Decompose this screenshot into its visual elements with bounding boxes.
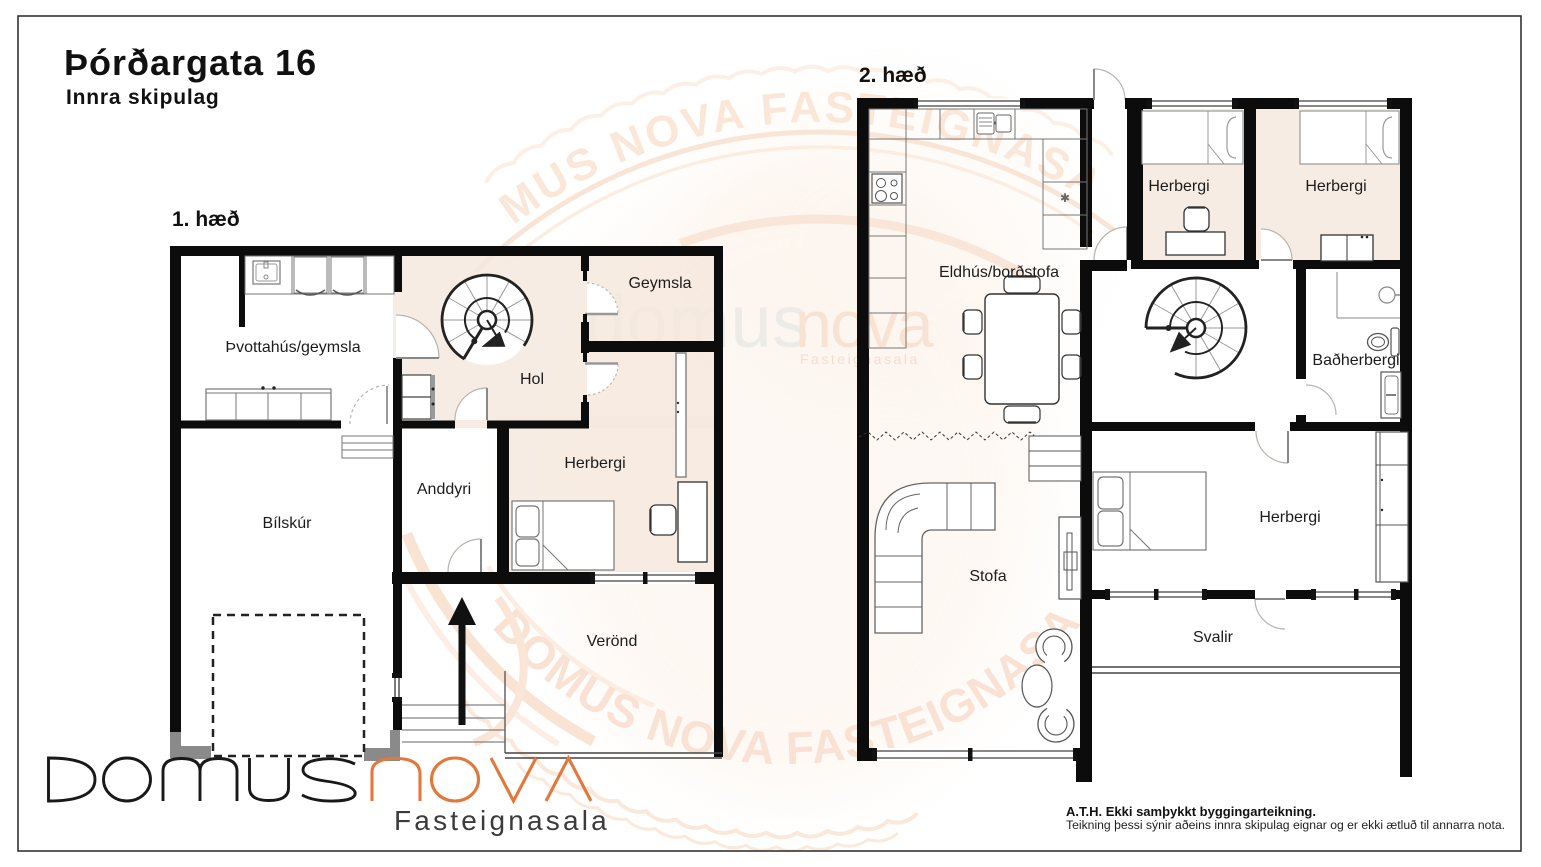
svg-text:✱: ✱ bbox=[1060, 191, 1070, 205]
svg-text:Þvottahús/geymsla: Þvottahús/geymsla bbox=[225, 339, 360, 356]
svg-text:Eldhús/borðstofa: Eldhús/borðstofa bbox=[939, 264, 1059, 281]
svg-text:Herbergi: Herbergi bbox=[564, 455, 625, 472]
svg-text:Teikning þessi sýnir aðeins in: Teikning þessi sýnir aðeins innra skipul… bbox=[1066, 818, 1505, 832]
svg-text:Innra skipulag: Innra skipulag bbox=[66, 86, 220, 109]
svg-text:Herbergi: Herbergi bbox=[1259, 509, 1320, 526]
svg-text:Verönd: Verönd bbox=[587, 633, 638, 650]
svg-text:Geymsla: Geymsla bbox=[628, 275, 691, 292]
svg-text:Bílskúr: Bílskúr bbox=[263, 515, 313, 532]
svg-text:Fasteignasala: Fasteignasala bbox=[394, 805, 610, 836]
svg-text:A.T.H. Ekki samþykkt byggingar: A.T.H. Ekki samþykkt byggingarteikning. bbox=[1066, 804, 1316, 819]
svg-text:Stofa: Stofa bbox=[969, 568, 1006, 585]
svg-text:2. hæð: 2. hæð bbox=[859, 64, 927, 87]
svg-text:Hol: Hol bbox=[520, 371, 544, 388]
svg-text:Herbergi: Herbergi bbox=[1305, 178, 1366, 195]
svg-text:1. hæð: 1. hæð bbox=[172, 208, 240, 231]
svg-text:Anddyri: Anddyri bbox=[417, 481, 471, 498]
svg-text:Herbergi: Herbergi bbox=[1148, 178, 1209, 195]
svg-text:Svalir: Svalir bbox=[1193, 629, 1234, 646]
svg-text:Baðherbergi: Baðherbergi bbox=[1312, 352, 1399, 369]
svg-text:Þórðargata 16: Þórðargata 16 bbox=[64, 42, 317, 83]
